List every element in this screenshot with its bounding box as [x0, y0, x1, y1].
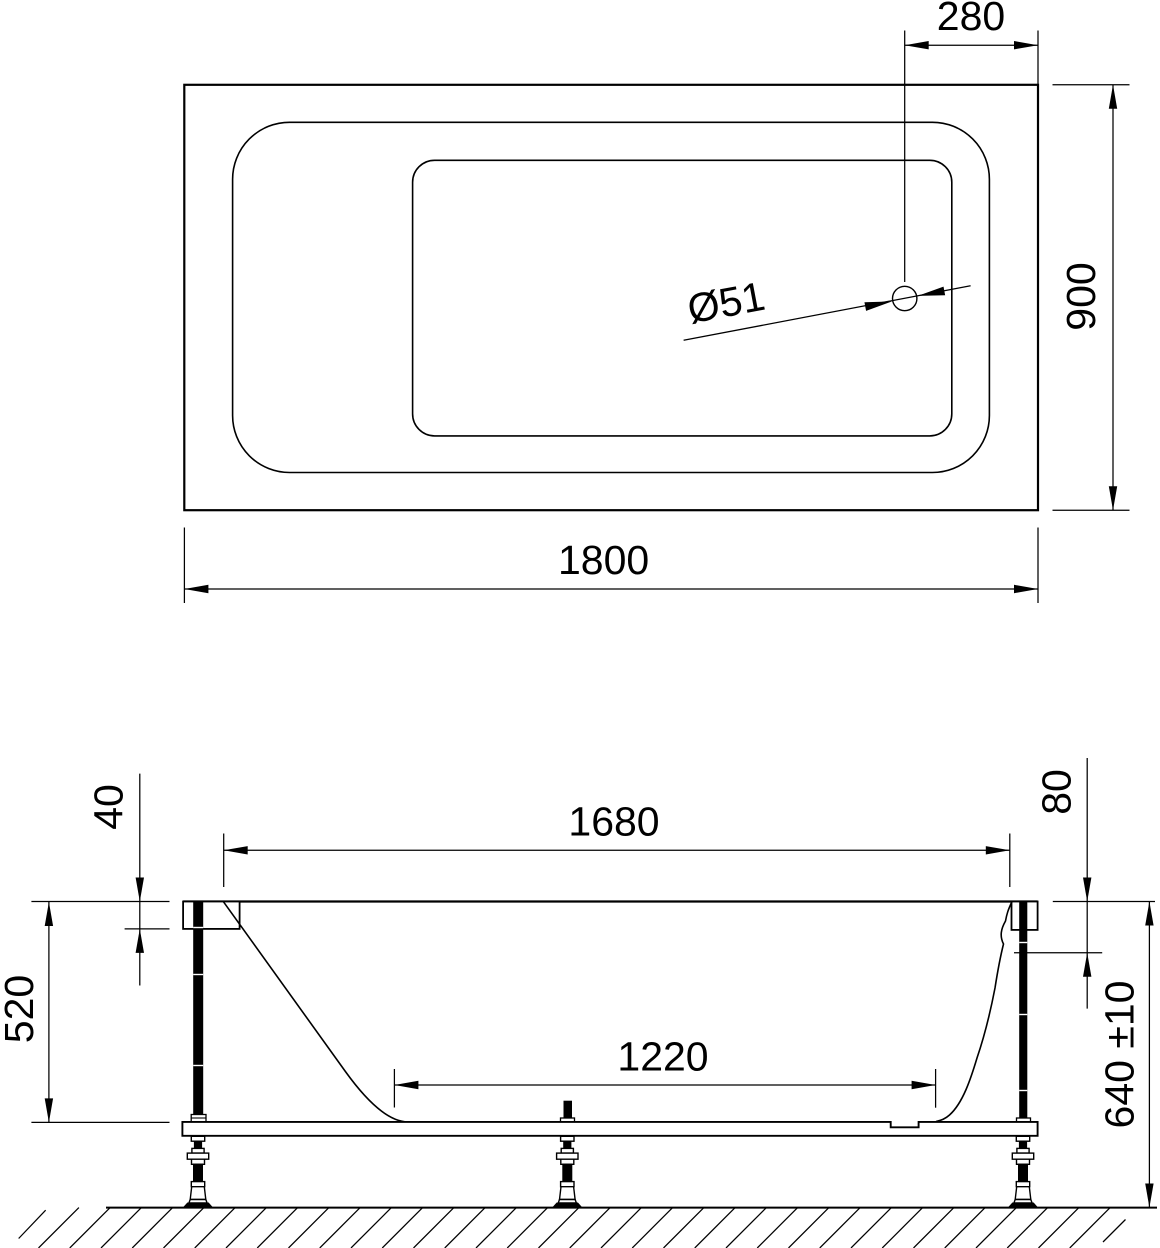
svg-text:80: 80 [1034, 769, 1080, 815]
svg-text:1680: 1680 [568, 799, 659, 845]
svg-text:1800: 1800 [558, 537, 649, 583]
svg-text:640 ±10: 640 ±10 [1097, 981, 1143, 1129]
svg-text:1220: 1220 [617, 1034, 708, 1080]
svg-text:280: 280 [937, 0, 1005, 39]
svg-text:900: 900 [1058, 262, 1104, 330]
svg-text:520: 520 [0, 975, 42, 1043]
svg-text:40: 40 [86, 784, 132, 830]
